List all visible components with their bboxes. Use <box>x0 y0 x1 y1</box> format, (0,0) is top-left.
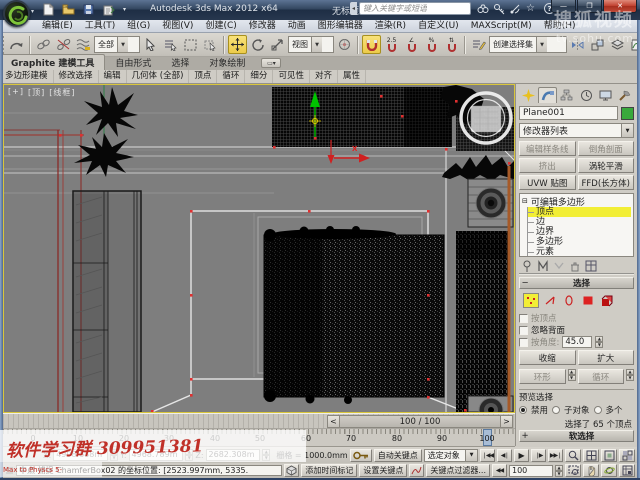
menu-customize[interactable]: 自定义(U) <box>412 20 465 33</box>
select-by-name-icon[interactable] <box>161 35 180 54</box>
x-coordinate-field[interactable]: 4998.688m <box>53 449 108 461</box>
minimize-button[interactable]: — <box>551 0 576 13</box>
red-wall-lines <box>4 130 84 412</box>
ribbon-tab-selection[interactable]: 选择 <box>161 55 199 70</box>
speaker-bottom[interactable] <box>468 396 513 412</box>
fetch-icon[interactable] <box>100 2 117 17</box>
panel-align[interactable]: 对齐 <box>310 70 338 83</box>
set-key-button[interactable]: 设置关键点 <box>359 464 407 477</box>
panel-loops[interactable]: 循环 <box>217 70 245 83</box>
align-icon[interactable] <box>588 35 607 54</box>
new-scene-icon[interactable] <box>40 2 57 17</box>
modifier-stack[interactable]: ⊟可编辑多边形 顶点 边 边界 多边形 元素 <box>519 193 634 257</box>
y-coordinate-field[interactable]: 4968.789m <box>129 449 184 461</box>
subscription-key-icon[interactable] <box>492 2 505 15</box>
open-file-icon[interactable] <box>60 2 77 17</box>
menu-group[interactable]: 组(G) <box>121 20 156 33</box>
stack-item-border[interactable]: 边界 <box>528 227 631 237</box>
reference-coordinate-dropdown[interactable]: 视图▼ <box>288 36 334 53</box>
pin-stack-icon[interactable] <box>521 260 533 272</box>
title-bar: ▾ Autodesk 3ds Max 2012 x64 无标题 ◂ 键入关键字或… <box>0 0 640 20</box>
tab-create-icon[interactable] <box>519 87 537 103</box>
side-unit[interactable] <box>456 231 510 412</box>
previous-frame-step-button[interactable]: ◀❘ <box>497 449 512 462</box>
stack-item-polygon[interactable]: 多边形 <box>528 237 631 247</box>
preview-multiple-label: 多个 <box>606 404 623 416</box>
maximize-button[interactable]: ❐ <box>577 0 602 13</box>
spinner-snap-icon[interactable]: ⇅ <box>442 35 461 54</box>
menu-rendering[interactable]: 渲染(R) <box>369 20 412 33</box>
tab-motion-icon[interactable] <box>577 87 595 103</box>
dropdown-arrow-icon: ▼ <box>621 124 633 137</box>
zoom-icon[interactable] <box>565 449 581 462</box>
status-bar-row2: 中点 捕捉 ChamferBox02 的坐标位置: [2523.997mm, 5… <box>3 463 637 478</box>
tick-label: 100 <box>479 434 494 443</box>
y-label: Y: <box>120 451 127 460</box>
angle-value-field[interactable]: 45.0 <box>562 336 592 348</box>
tick-label: 40 <box>210 434 220 443</box>
viewport-label: [+] [顶] [线框] <box>8 87 75 98</box>
stack-item-edge[interactable]: 边 <box>528 217 631 227</box>
preview-disable-radio[interactable] <box>519 406 527 414</box>
edit-spline-button[interactable]: 编辑样条线 <box>519 141 576 156</box>
window-frame-left <box>0 20 3 478</box>
turbosmooth-button[interactable]: 涡轮平滑 <box>578 158 635 173</box>
ribbon-panel-row: 多边形建模 修改选择 编辑 几何体 (全部) 顶点 循环 细分 可见性 对齐 属… <box>0 70 640 84</box>
prompt-lock-icon[interactable] <box>5 466 14 475</box>
3dsmax-window: { "window": { "app_title": "Autodesk 3ds… <box>0 0 640 480</box>
bind-to-space-warp-icon[interactable] <box>74 35 93 54</box>
orbit-icon[interactable] <box>601 464 617 477</box>
panel-geometry-all[interactable]: 几何体 (全部) <box>127 70 190 83</box>
grow-button[interactable]: 扩大 <box>578 350 635 365</box>
panel-subdivision[interactable]: 细分 <box>245 70 273 83</box>
z-spinner[interactable]: ▲▼ <box>262 449 270 461</box>
reference-coordinate-value: 视图 <box>289 39 311 50</box>
menu-help[interactable]: 帮助(H) <box>538 20 582 33</box>
viewport-menu-shading[interactable]: [线框] <box>49 87 75 98</box>
select-and-rotate-button[interactable] <box>248 35 267 54</box>
selection-region-icon[interactable] <box>181 35 200 54</box>
ribbon-tab-freeform[interactable]: 自由形式 <box>105 55 161 70</box>
object-color-swatch[interactable] <box>621 107 634 120</box>
save-file-icon[interactable] <box>80 2 97 17</box>
tick-label: 70 <box>346 434 356 443</box>
preview-subobject-radio[interactable] <box>552 406 560 414</box>
stack-toolbar <box>519 259 634 275</box>
snap-25d-icon[interactable]: 2.5 <box>382 35 401 54</box>
plant-right[interactable] <box>442 155 514 181</box>
preview-subobject-label: 子对象 <box>564 404 590 416</box>
key-mode-toggle-button[interactable]: ◀◀ <box>492 464 507 477</box>
mirror-icon[interactable] <box>568 35 587 54</box>
vertex-mode-icon[interactable] <box>523 293 539 308</box>
auto-key-button[interactable]: 自动关键点 <box>374 449 422 462</box>
tick-label: 30 <box>164 434 174 443</box>
viewport-menu-general[interactable]: [+] <box>8 87 24 98</box>
extrude-button[interactable]: 挤出 <box>519 158 576 173</box>
dropdown-arrow-icon: ▼ <box>117 37 128 52</box>
search-binoculars-icon[interactable] <box>476 2 489 15</box>
uvw-map-button[interactable]: UVW 贴图 <box>519 175 576 190</box>
ignore-backfacing-label: 忽略背面 <box>531 324 565 336</box>
go-to-end-button[interactable]: ▶▶❘ <box>548 449 563 462</box>
dropdown-arrow-icon: ▼ <box>311 37 322 52</box>
zoom-extents-all-icon[interactable] <box>619 449 635 462</box>
ribbon-tab-bar: Graphite 建模工具 自由形式 选择 对象绘制 ▭▾ <box>0 57 640 70</box>
collapse-minus-icon: − <box>520 278 530 288</box>
qat-dropdown-icon[interactable]: ▾ <box>120 2 129 17</box>
time-slider-track[interactable]: < 100 / 100 > <box>3 413 515 429</box>
modifier-list-label: 修改器列表 <box>520 124 621 137</box>
search-input[interactable]: 键入关键字或短语 <box>359 2 471 15</box>
preview-disable-label: 禁用 <box>531 404 548 416</box>
ignore-backfacing-checkbox[interactable] <box>519 326 528 335</box>
set-keys-key-icon[interactable] <box>350 449 372 462</box>
menu-bar: 编辑(E) 工具(T) 组(G) 视图(V) 创建(C) 修改器 动画 图形编辑… <box>0 20 640 33</box>
named-selection-value: 创建选择集 <box>490 39 536 50</box>
stack-root-label[interactable]: 可编辑多边形 <box>531 195 585 208</box>
viewport-menu-pov[interactable]: [顶] <box>28 87 45 98</box>
edge-mode-icon[interactable] <box>542 293 558 308</box>
prompt-line: 中点 捕捉 ChamferBox02 的坐标位置: [2523.997mm, 5… <box>16 465 282 476</box>
unlink-selection-icon[interactable] <box>54 35 73 54</box>
angle-snap-icon[interactable]: ∠ <box>402 35 421 54</box>
menu-create[interactable]: 创建(C) <box>199 20 242 33</box>
command-panel-tabs <box>519 85 634 103</box>
plant-top-left[interactable] <box>84 87 138 137</box>
key-selection-dropdown[interactable]: 选定对象 ▼ <box>424 449 478 462</box>
viewport-canvas[interactable] <box>4 85 514 412</box>
tick-label: 10 <box>73 434 83 443</box>
track-bar[interactable]: 0 10 20 30 40 50 60 70 80 90 100 <box>3 429 515 447</box>
redo-icon[interactable] <box>7 35 26 54</box>
by-angle-checkbox[interactable] <box>519 338 528 347</box>
show-end-result-icon[interactable] <box>537 260 549 272</box>
loop-button[interactable]: 循环 <box>578 369 625 384</box>
by-vertex-label: 按顶点 <box>531 312 557 324</box>
cabinet[interactable] <box>73 191 141 412</box>
soft-selection-rollout-header[interactable]: + 软选择 <box>519 430 634 442</box>
percent-snap-icon[interactable]: % <box>422 35 441 54</box>
tick-label: 0 <box>30 434 35 443</box>
next-frame-button[interactable]: > <box>500 415 513 428</box>
go-to-start-button[interactable]: ❘◀◀ <box>480 449 495 462</box>
ribbon-tab-graphite[interactable]: Graphite 建模工具 <box>0 54 105 70</box>
x-spinner[interactable]: ▲▼ <box>110 449 118 461</box>
select-and-move-button[interactable] <box>228 35 247 54</box>
gizmo-x-label: X <box>352 145 357 153</box>
tab-utilities-icon[interactable] <box>616 87 634 103</box>
panel-edit[interactable]: 编辑 <box>99 70 127 83</box>
remove-modifier-icon[interactable] <box>569 260 581 272</box>
menu-views[interactable]: 视图(V) <box>156 20 199 33</box>
panel-modify-selection[interactable]: 修改选择 <box>54 70 99 83</box>
menu-animation[interactable]: 动画 <box>282 20 312 33</box>
shrink-button[interactable]: 收缩 <box>519 350 576 365</box>
preview-selection-group: 预览选择 禁用 子对象 多个 <box>519 389 634 416</box>
selection-filter-dropdown[interactable]: 全部▼ <box>94 36 140 53</box>
select-and-link-icon[interactable] <box>34 35 53 54</box>
communication-center-icon[interactable] <box>508 2 521 15</box>
object-name-field[interactable]: Plane001 <box>519 106 618 120</box>
select-object-icon[interactable] <box>141 35 160 54</box>
select-and-scale-button[interactable] <box>268 35 287 54</box>
layer-manager-icon[interactable] <box>608 35 627 54</box>
next-frame-step-button[interactable]: ❘▶ <box>531 449 546 462</box>
menu-maxscript[interactable]: MAXScript(M) <box>465 20 538 33</box>
application-menu-caret-icon: ▾ <box>31 8 34 15</box>
add-time-tag-button[interactable]: 添加时间标记 <box>301 464 357 477</box>
pan-hand-icon[interactable] <box>583 464 599 477</box>
use-center-flyout-icon[interactable] <box>335 35 354 54</box>
app-title: Autodesk 3ds Max 2012 x64 <box>150 4 278 14</box>
stack-item-element[interactable]: 元素 <box>528 247 631 257</box>
modifier-list-dropdown[interactable]: 修改器列表 ▼ <box>519 123 634 138</box>
angle-spinner[interactable]: ▲▼ <box>595 336 603 348</box>
plant-left[interactable] <box>74 133 134 177</box>
grid-size-readout: 栅格 = 1000.0mm <box>276 450 347 461</box>
dropdown-arrow-icon: ▼ <box>465 450 477 461</box>
tick-label: 90 <box>437 434 447 443</box>
application-menu-button[interactable] <box>3 0 30 27</box>
current-frame-display[interactable]: 100 / 100 <box>340 415 500 428</box>
x-label: X: <box>43 451 51 460</box>
panel-properties[interactable]: 属性 <box>338 70 366 83</box>
zoom-extents-icon[interactable] <box>601 449 617 462</box>
panel-polygon-modeling[interactable]: 多边形建模 <box>0 70 54 83</box>
favorites-star-icon[interactable]: ☆ <box>524 2 537 15</box>
search-collapse-icon[interactable]: ◂ <box>350 2 357 15</box>
speaker-top[interactable] <box>468 179 513 227</box>
bevel-profile-button[interactable]: 倒角剖面 <box>578 141 635 156</box>
subobject-icons <box>519 291 634 310</box>
expand-plus-icon: + <box>520 431 530 441</box>
tab-hierarchy-icon[interactable] <box>558 87 576 103</box>
snaps-toggle-button[interactable] <box>362 35 381 54</box>
element-mode-icon[interactable] <box>599 293 615 308</box>
tick-label: 80 <box>392 434 402 443</box>
panel-vertices[interactable]: 顶点 <box>189 70 217 83</box>
ring-button[interactable]: 环形 <box>519 369 566 384</box>
zoom-region-icon[interactable] <box>565 464 581 477</box>
time-slider-handle[interactable]: < 100 / 100 > <box>327 415 513 428</box>
modifier-shortcut-buttons: 编辑样条线 倒角剖面 挤出 涡轮平滑 UVW 贴图 FFD(长方体) <box>519 141 634 190</box>
tick-label: 50 <box>255 434 265 443</box>
edit-named-selection-sets-icon[interactable] <box>469 35 488 54</box>
border-mode-icon[interactable] <box>561 293 577 308</box>
current-frame-field[interactable]: 100 <box>509 465 553 477</box>
named-selection-dropdown[interactable]: 创建选择集▼ <box>489 36 567 53</box>
key-filters-button[interactable]: 关键点过滤器... <box>426 464 490 477</box>
menu-tools[interactable]: 工具(T) <box>79 20 122 33</box>
by-vertex-checkbox[interactable] <box>519 314 528 323</box>
search-placeholder: 键入关键字或短语 <box>363 3 427 14</box>
stack-item-vertex[interactable]: 顶点 <box>528 207 631 217</box>
infocenter: ◂ 键入关键字或短语 ☆ ?▾ <box>350 2 560 15</box>
window-controls: — ❐ ✕ <box>551 0 637 13</box>
menu-edit[interactable]: 编辑(E) <box>36 20 79 33</box>
isolate-selection-icon[interactable] <box>284 464 299 477</box>
selection-filter-value: 全部 <box>95 39 117 50</box>
preview-multiple-radio[interactable] <box>594 406 602 414</box>
window-crossing-icon[interactable] <box>201 35 220 54</box>
collapse-icon[interactable]: ⊟ <box>522 197 528 205</box>
menu-graph-editors[interactable]: 图形编辑器 <box>312 20 369 33</box>
tick-label: 20 <box>119 434 129 443</box>
polygon-mode-icon[interactable] <box>580 293 596 308</box>
panel-visibility[interactable]: 可见性 <box>273 70 310 83</box>
z-coordinate-field[interactable]: 2682.308m <box>206 449 261 461</box>
selection-rollout-header[interactable]: − 选择 <box>519 277 634 289</box>
dropdown-arrow-icon: ▼ <box>536 37 547 52</box>
bed[interactable] <box>264 226 444 404</box>
preview-selection-label: 预览选择 <box>519 391 634 403</box>
ring-spinner[interactable]: ▲▼ <box>568 369 576 381</box>
maximize-viewport-icon[interactable] <box>619 464 635 477</box>
menu-modifiers[interactable]: 修改器 <box>243 20 282 33</box>
configure-modifier-sets-icon[interactable] <box>585 260 597 272</box>
tab-modify-icon[interactable] <box>538 87 556 103</box>
new-key-curve-icon[interactable] <box>409 464 424 477</box>
z-label: Z: <box>195 451 203 460</box>
ffd-box-button[interactable]: FFD(长方体) <box>578 175 635 190</box>
ribbon-minimize-button[interactable]: ▭▾ <box>261 58 281 68</box>
make-unique-icon[interactable] <box>553 260 565 272</box>
selection-status-text: 选择了 65 个顶点 <box>519 416 634 430</box>
viewport-top[interactable]: [+] [顶] [线框] X <box>3 84 515 413</box>
tab-display-icon[interactable] <box>596 87 614 103</box>
loop-spinner[interactable]: ▲▼ <box>626 369 634 381</box>
y-spinner[interactable]: ▲▼ <box>185 449 193 461</box>
zoom-all-icon[interactable] <box>583 449 599 462</box>
frame-spinner[interactable]: ▲▼ <box>555 465 563 477</box>
play-button[interactable]: ▶ <box>514 449 529 462</box>
close-button[interactable]: ✕ <box>603 0 637 13</box>
status-bar-row1: X: 4998.688m▲▼ Y: 4968.789m▲▼ Z: 2682.30… <box>3 447 637 463</box>
previous-frame-button[interactable]: < <box>327 415 340 428</box>
ribbon-tab-object-paint[interactable]: 对象绘制 <box>199 55 255 70</box>
quick-access-toolbar: ▾ <box>40 2 129 17</box>
by-angle-label: 按角度: <box>531 336 559 348</box>
command-panel: Plane001 修改器列表 ▼ 编辑样条线 倒角剖面 挤出 涡轮平滑 UVW … <box>515 84 637 446</box>
tick-label: 60 <box>301 434 311 443</box>
